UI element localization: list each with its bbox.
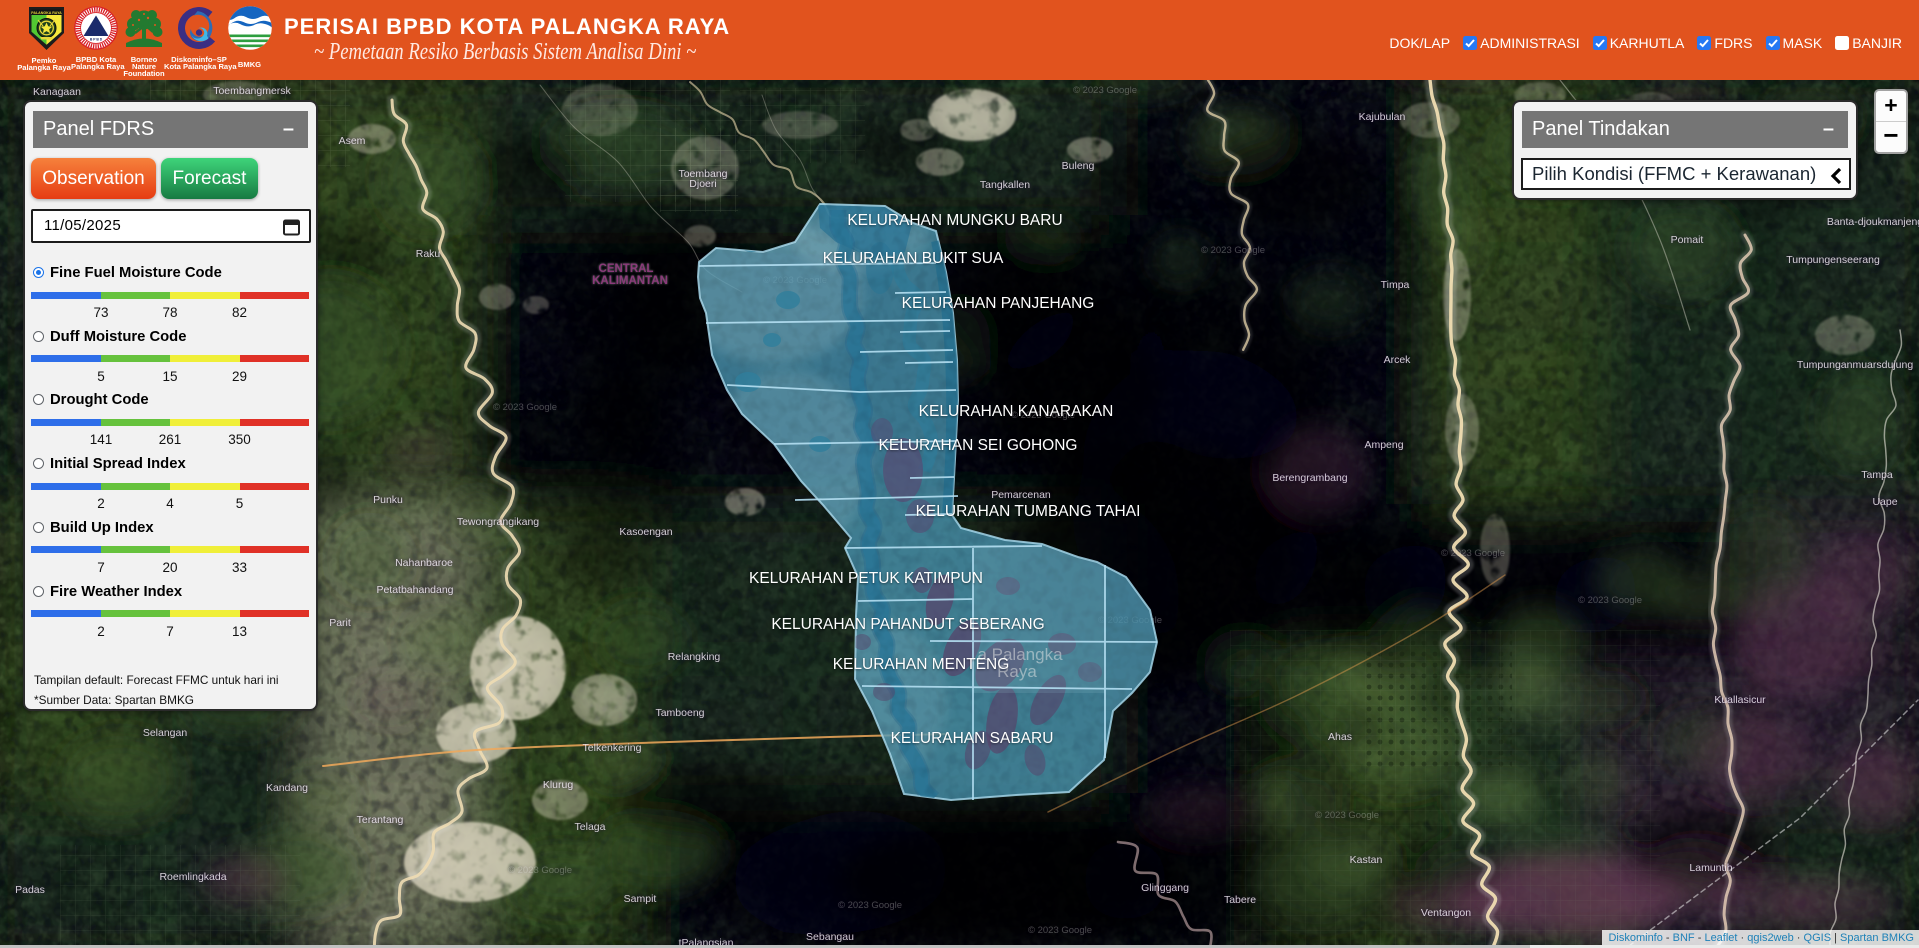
svg-text:KELURAHAN KANARAKAN: KELURAHAN KANARAKAN (919, 403, 1114, 420)
svg-text:Tamboeng: Tamboeng (655, 707, 704, 719)
svg-text:Toembangmersk: Toembangmersk (213, 85, 291, 97)
svg-text:KELURAHAN BUKIT SUA: KELURAHAN BUKIT SUA (823, 250, 1004, 267)
svg-text:Tangkallen: Tangkallen (980, 179, 1030, 191)
svg-text:Tampa: Tampa (1861, 469, 1893, 481)
svg-text:Roemlingkada: Roemlingkada (159, 871, 226, 883)
svg-text:Sampit: Sampit (624, 893, 657, 905)
svg-text:Tumpunganmuarsdujung: Tumpunganmuarsdujung (1797, 359, 1914, 371)
svg-text:Kanagaan: Kanagaan (33, 86, 81, 98)
svg-text:Arcek: Arcek (1384, 354, 1412, 366)
svg-text:Telaga: Telaga (575, 821, 606, 833)
svg-text:Asem: Asem (339, 135, 366, 147)
svg-text:KELURAHAN PETUK KATIMPUN: KELURAHAN PETUK KATIMPUN (749, 570, 983, 587)
svg-text:© 2023 Google: © 2023 Google (1028, 925, 1092, 936)
svg-text:Raku: Raku (416, 248, 441, 260)
svg-text:Glinggang: Glinggang (1141, 882, 1189, 894)
svg-text:Buleng: Buleng (1062, 160, 1095, 172)
svg-text:Selangan: Selangan (143, 727, 188, 739)
svg-text:KELURAHAN MENTENG: KELURAHAN MENTENG (833, 656, 1010, 673)
svg-text:Kasoengan: Kasoengan (619, 526, 672, 538)
svg-text:© 2023 Google: © 2023 Google (493, 402, 557, 413)
svg-text:Ahas: Ahas (1328, 731, 1352, 743)
svg-text:Kuallasicur: Kuallasicur (1714, 694, 1766, 706)
svg-text:Klurug: Klurug (543, 779, 574, 791)
svg-text:Ampeng: Ampeng (1364, 439, 1403, 451)
svg-text:KELURAHAN TUMBANG TAHAI: KELURAHAN TUMBANG TAHAI (916, 503, 1141, 520)
svg-text:Relangking: Relangking (668, 651, 721, 663)
svg-text:B P B D: B P B D (90, 38, 103, 42)
svg-text:© 2023 Google: © 2023 Google (508, 865, 572, 876)
svg-text:Kandang: Kandang (266, 782, 308, 794)
svg-text:Kastan: Kastan (1350, 854, 1383, 866)
svg-text:Timpa: Timpa (1381, 279, 1410, 291)
svg-text:Parit: Parit (329, 617, 351, 629)
svg-text:PALANGKA RAYA: PALANGKA RAYA (31, 11, 62, 15)
svg-text:KELURAHAN PANJEHANG: KELURAHAN PANJEHANG (902, 295, 1095, 312)
svg-text:Kajubulan: Kajubulan (1359, 111, 1406, 123)
svg-text:KELURAHAN MUNGKU BARU: KELURAHAN MUNGKU BARU (847, 212, 1062, 229)
svg-text:Ventangon: Ventangon (1421, 907, 1471, 919)
svg-text:© 2023 Google: © 2023 Google (1578, 595, 1642, 606)
svg-text:Nahanbaroe: Nahanbaroe (395, 557, 453, 569)
svg-text:Djoeri: Djoeri (689, 178, 716, 190)
svg-text:Banta-djoukmanjeng: Banta-djoukmanjeng (1827, 216, 1919, 228)
svg-text:Telkenkering: Telkenkering (583, 742, 642, 754)
svg-text:Uape: Uape (1872, 496, 1897, 508)
svg-text:Padas: Padas (15, 884, 45, 896)
svg-text:CENTRAL: CENTRAL (599, 263, 654, 275)
svg-text:KELURAHAN SABARU: KELURAHAN SABARU (891, 730, 1054, 747)
svg-text:Tumpungenseerang: Tumpungenseerang (1786, 254, 1880, 266)
svg-text:© 2023 Google: © 2023 Google (838, 900, 902, 911)
svg-text:Punku: Punku (373, 494, 403, 506)
svg-text:© 2023 Google: © 2023 Google (1441, 548, 1505, 559)
svg-text:© 2023 Google: © 2023 Google (1315, 810, 1379, 821)
svg-text:Lamuntih: Lamuntih (1689, 862, 1732, 874)
svg-text:© 2023 Google: © 2023 Google (1201, 245, 1265, 256)
svg-text:Tewongrangikang: Tewongrangikang (457, 516, 539, 528)
svg-text:Pemarcenan: Pemarcenan (991, 489, 1051, 501)
svg-text:Berengrambang: Berengrambang (1272, 472, 1347, 484)
svg-text:© 2023 Google: © 2023 Google (1073, 85, 1137, 96)
svg-text:Terantang: Terantang (357, 814, 404, 826)
svg-text:Petatbahandang: Petatbahandang (376, 584, 453, 596)
svg-text:Pomait: Pomait (1671, 234, 1704, 246)
svg-text:Tabere: Tabere (1224, 894, 1256, 906)
svg-text:KELURAHAN PAHANDUT SEBERANG: KELURAHAN PAHANDUT SEBERANG (771, 616, 1044, 633)
svg-text:Sebangau: Sebangau (806, 931, 854, 943)
svg-text:KALIMANTAN: KALIMANTAN (592, 275, 668, 287)
svg-text:KELURAHAN SEI GOHONG: KELURAHAN SEI GOHONG (879, 437, 1078, 454)
